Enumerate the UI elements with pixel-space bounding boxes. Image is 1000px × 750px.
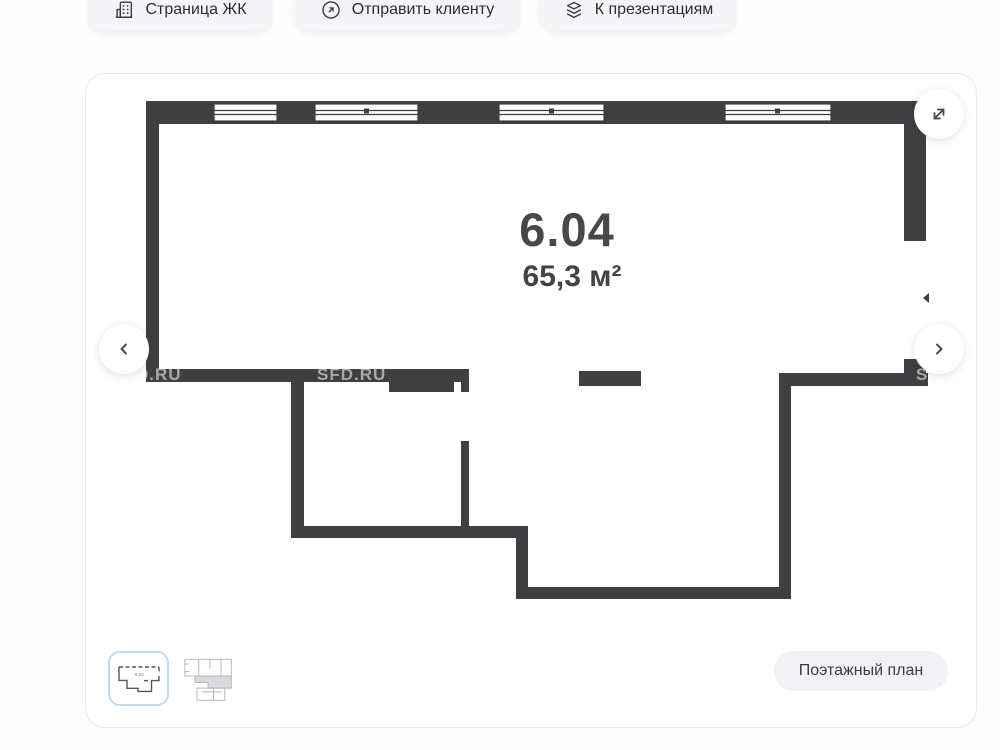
chevron-right-icon [931,341,947,357]
chevron-left-icon [116,341,132,357]
door-marker [923,293,929,303]
to-presentations-button[interactable]: К презентациям [540,0,736,31]
layers-icon [563,0,585,21]
next-plan-button[interactable] [914,324,964,374]
to-presentations-label: К презентациям [595,1,714,19]
send-arrow-icon [320,0,342,21]
previous-plan-button[interactable] [99,324,149,374]
floor-plan-button[interactable]: Поэтажный план [774,651,948,691]
unit-plan-thumbnail[interactable]: 6.04 [108,651,169,706]
svg-text:6.04: 6.04 [135,672,144,677]
unit-area: 65,3 м² [422,260,722,294]
floor-plate-thumbnail-drawing [180,651,238,703]
send-to-client-label: Отправить клиенту [352,1,494,19]
complex-page-button[interactable]: Страница ЖК [88,0,272,31]
fullscreen-button[interactable] [914,89,964,139]
building-icon [113,0,135,21]
floor-plan-walls [146,101,929,599]
plan-viewer-card: 6.04 65,3 м² D.RU SFD.RU S [85,73,977,728]
unit-number: 6.04 [417,202,717,257]
unit-plan-thumbnail-drawing: 6.04 [116,660,162,698]
expand-arrows-icon [927,102,951,126]
send-to-client-button[interactable]: Отправить клиенту [294,0,520,31]
complex-page-label: Страница ЖК [145,1,246,19]
floor-plate-thumbnail[interactable] [178,649,240,705]
floor-plan-drawing [86,74,977,728]
